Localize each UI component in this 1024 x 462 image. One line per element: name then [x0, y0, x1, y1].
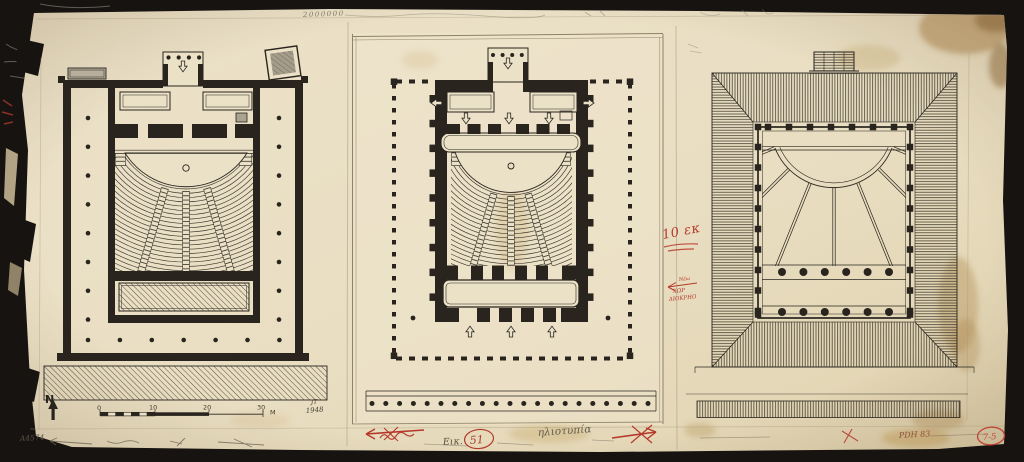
scanned-drawing-sheet: 2000000 N 0 10 20 30 M JT 1948 A4574 10 …: [0, 0, 1024, 462]
roof-right-slope: [915, 73, 957, 367]
outbuilding-tilted: [265, 46, 301, 80]
roof-top-slope: [712, 73, 957, 122]
roof-left-slope: [712, 73, 753, 367]
small-annex: [236, 113, 247, 122]
left-stage: [119, 283, 249, 311]
roof-lantern: [809, 52, 859, 74]
figure-number: 51: [469, 433, 484, 447]
scale-tick-0: 0: [97, 404, 101, 412]
top-pencil-scribble: 2000000: [302, 10, 345, 19]
scale-unit: M: [270, 409, 276, 417]
left-orchestra-center-mark: [183, 165, 189, 171]
outbuilding-left: [68, 68, 106, 79]
left-stoa: [44, 366, 327, 400]
figure-caption: Εικ.: [442, 436, 463, 448]
middle-orchestra-center-mark: [508, 163, 514, 169]
north-label: N: [45, 393, 54, 406]
scale-tick-20: 20: [203, 404, 211, 412]
inventory-code-right: PDH 83: [898, 429, 931, 440]
theatre-plans-drawing: 2000000 N 0 10 20 30 M JT 1948 A4574 10 …: [0, 0, 1024, 462]
scale-tick-30: 30: [257, 404, 265, 412]
middle-diazoma-band: [441, 133, 581, 152]
inventory-code-left: A4574: [19, 433, 45, 443]
year-note: 1948: [305, 405, 324, 415]
roof-bottom-slope: [712, 322, 957, 367]
right-stoa-roof: [697, 401, 960, 418]
red-stamp: 7-5: [983, 432, 997, 443]
middle-stage: [443, 280, 579, 307]
scale-tick-10: 10: [149, 404, 157, 412]
red-note-line1: Νέω: [677, 275, 690, 283]
